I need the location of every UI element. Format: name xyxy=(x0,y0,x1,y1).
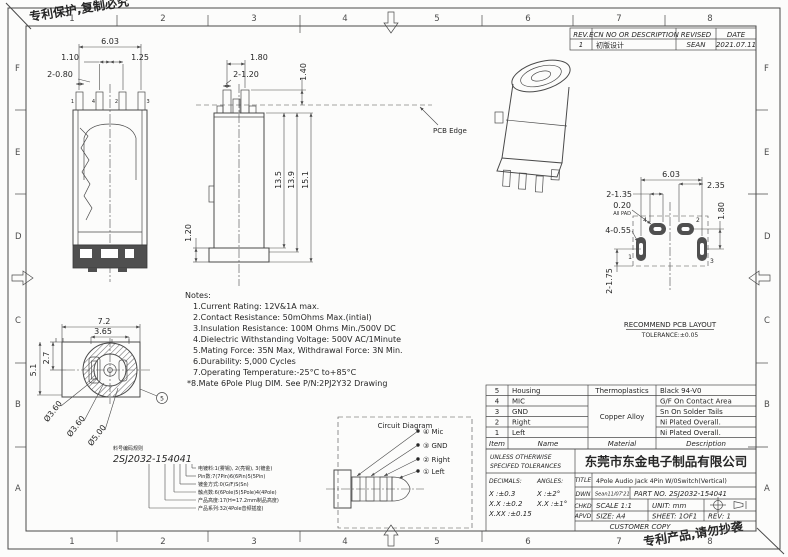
projection-symbol-icon xyxy=(710,497,746,513)
revised-header: REVISED xyxy=(681,31,712,39)
bom-item: 3 xyxy=(495,408,499,416)
zone-number: 2 xyxy=(160,537,165,547)
zone-letter: B xyxy=(764,400,770,410)
bom-header: Name xyxy=(538,440,559,448)
decimals-label: DECIMALS: xyxy=(489,478,522,485)
code-legend-line: 触点数:6(6Pole)5(5Pole)4(4Pole) xyxy=(198,489,277,496)
zone-letter: A xyxy=(15,484,21,494)
bom-header: Item xyxy=(489,440,505,448)
part-code-heading: 料号编码规则 xyxy=(113,445,143,452)
zone-number: 3 xyxy=(251,537,256,547)
tolerance-value: X.X :±1° xyxy=(536,500,567,508)
zone-letter: A xyxy=(764,484,770,494)
engineering-drawing-sheet: F E D C B A F E D C B A 1 2 3 4 5 6 7 8 … xyxy=(0,0,788,557)
bom-description: Sn On Solder Tails xyxy=(660,408,723,416)
bom-item: 2 xyxy=(495,419,499,427)
zone-number: 5 xyxy=(434,537,439,547)
dim-label: Ø3.60 xyxy=(41,399,64,424)
bom-name: GND xyxy=(512,408,528,416)
title-label: TITLE xyxy=(575,477,591,484)
zone-number: 6 xyxy=(525,14,530,24)
pcb-layout-view: 4 2 1 3 6.03 2.35 2-1.35 0.20 All PAD 4-… xyxy=(605,170,726,339)
pcb-tolerance-caption: TOLERANCE:±0.05 xyxy=(641,332,699,339)
zone-number: 4 xyxy=(342,537,347,547)
code-legend-line: 镀金方式:0(G/F)S(Sn) xyxy=(198,481,249,488)
pad-number: 2 xyxy=(696,217,700,224)
tolerance-note: SPECIFED TOLERANCES xyxy=(490,463,561,470)
bom-item: 5 xyxy=(495,387,499,395)
pin-number: 3 xyxy=(147,99,150,105)
part-number-legend: 料号编码规则 2SJ2032-154041 电镀料:1(雾锡), 2(亮锡), … xyxy=(113,445,279,512)
iso-socket-hole xyxy=(530,69,552,83)
pcb-edge-label: PCB Edge xyxy=(433,127,467,135)
part-code-tree xyxy=(149,464,196,508)
note-item: 3.Insulation Resistance: 100M Ohms Min./… xyxy=(193,324,396,333)
code-legend-line: 产品高度:17(H=17.2mm制品高度) xyxy=(198,497,279,504)
dim-label: Ø5.00 xyxy=(85,423,108,448)
spring-contact xyxy=(80,128,92,220)
part-number: 2SJ2032-154041 xyxy=(113,454,192,465)
chkd-label: CHKD xyxy=(574,503,592,510)
circuit-pin-label: ② Right xyxy=(423,456,450,464)
dwn-value: Sean11/07'21 xyxy=(595,492,630,498)
note-item: 1.Current Rating: 12V&1A max. xyxy=(193,302,319,311)
note-item: 4.Dielectric Withstanding Voltage: 500V … xyxy=(193,335,401,344)
zone-number: 8 xyxy=(707,14,712,24)
dim-label: 5.1 xyxy=(29,364,38,377)
code-legend-line: Pin数:7(7Pin)6(6Pin)5(5Pin) xyxy=(198,473,265,480)
dim-label: 1.40 xyxy=(299,63,308,81)
tolerance-note: UNLESS OTHERWISE xyxy=(490,454,552,461)
pin-number: 2 xyxy=(115,99,118,105)
pcb-layout-caption: RECOMMEND PCB LAYOUT xyxy=(624,321,717,329)
iso-flange-top xyxy=(508,54,573,97)
dwn-label: DWN xyxy=(575,491,591,498)
notes-title: Notes: xyxy=(185,291,211,300)
side-view: PCB Edge 1.80 2-1.20 1.40 13.5 13.9 xyxy=(184,53,467,286)
scale-value: SCALE 1:1 xyxy=(596,502,632,510)
code-legend-line: 产品系列:32(4Pole音频插座) xyxy=(198,505,264,512)
bom-description: Ni Plated Overall. xyxy=(660,429,721,437)
dim-label: All PAD xyxy=(613,211,631,217)
bom-material: Copper Alloy xyxy=(600,413,645,421)
dim-label: 2-1.35 xyxy=(606,190,632,199)
zone-number: 6 xyxy=(525,537,530,547)
centering-arrow-top xyxy=(384,12,398,33)
date-header: DATE xyxy=(727,31,746,39)
zone-letter: F xyxy=(764,64,769,74)
bom-table: 5 4 3 2 1 Housing MIC GND Right Left The… xyxy=(486,385,756,449)
part-no: PART NO. 2SJ2032-154041 xyxy=(634,490,727,498)
zone-letter: E xyxy=(15,148,20,158)
note-item: 7.Operating Temperature:-25°C to+85°C xyxy=(193,368,357,377)
rev-date: 2021.07.11 xyxy=(716,41,756,49)
dim-label: 2.7 xyxy=(42,352,51,365)
dim-label: 1.80 xyxy=(250,53,268,62)
zone-number: 5 xyxy=(434,14,439,24)
drawing-title: 4Pole Audio Jack 4Pin W/0Switch(Vertical… xyxy=(596,478,727,485)
zone-letter: D xyxy=(764,232,771,242)
tolerance-value: X.XX :±0.15 xyxy=(488,510,532,518)
bom-description: Ni Plated Overall. xyxy=(660,419,721,427)
circuit-pin-label: ③ GND xyxy=(423,442,448,450)
note-item: 5.Mating Force: 35N Max, Withdrawal Forc… xyxy=(193,346,403,355)
dim-label: 6.03 xyxy=(101,37,119,46)
note-item: 6.Durability: 5,000 Cycles xyxy=(193,357,296,366)
customer-copy-label: CUSTOMER COPY xyxy=(610,523,671,531)
dim-label: 2.35 xyxy=(707,181,725,190)
bom-name: Left xyxy=(512,429,525,437)
pin-number: 1 xyxy=(71,99,74,105)
zone-letter: C xyxy=(764,316,770,326)
notes: Notes: 1.Current Rating: 12V&1A max. 2.C… xyxy=(185,291,403,388)
zone-letter: D xyxy=(15,232,22,242)
iso-base xyxy=(497,158,562,177)
revision-table: REV. ECN NO OR DESCRIPTION REVISED DATE … xyxy=(570,28,756,50)
solder-pin xyxy=(223,90,231,113)
bom-name: Housing xyxy=(512,387,540,395)
centering-arrow-left xyxy=(12,271,33,285)
company-name: 东莞市东金电子制品有限公司 xyxy=(585,454,748,469)
dim-label: 6.03 xyxy=(662,170,680,179)
bom-material: Thermoplastics xyxy=(594,387,649,395)
ecn-header: ECN NO OR DESCRIPTION xyxy=(589,31,679,39)
dim-label: 1.20 xyxy=(184,224,193,242)
tolerance-value: X :±2° xyxy=(536,490,560,498)
dim-label: 7.2 xyxy=(98,317,111,326)
iso-pins xyxy=(502,167,559,193)
dim-label: 1.25 xyxy=(131,53,149,62)
zone-letter: B xyxy=(15,400,21,410)
tolerance-value: X :±0.3 xyxy=(488,490,515,498)
rev-description: 初版设计 xyxy=(596,41,624,50)
bom-description: G/F On Contact Area xyxy=(660,398,732,406)
dim-label: 0.20 xyxy=(613,201,631,210)
zone-number: 4 xyxy=(342,14,347,24)
rev-number: 1 xyxy=(579,41,583,49)
sheet-value: SHEET: 1OF1 xyxy=(652,513,697,521)
circuit-pin-label: ④ Mic xyxy=(423,428,443,436)
dim-label: 13.5 xyxy=(274,171,283,189)
solder-pin xyxy=(241,90,249,113)
dim-label: 2-0.80 xyxy=(47,70,73,79)
dim-label: 1.10 xyxy=(61,53,79,62)
dim-label: 3.65 xyxy=(94,327,112,336)
bom-description: Black 94-V0 xyxy=(660,387,701,395)
zone-letter: E xyxy=(764,148,769,158)
apvd-label: APVD xyxy=(574,513,592,520)
zone-letter: F xyxy=(15,64,20,74)
rev-header: REV. xyxy=(573,31,589,39)
patent-watermark-top-left: 专利保护,复制必究 xyxy=(28,0,130,24)
zone-letter: C xyxy=(15,316,21,326)
zone-number: 7 xyxy=(616,14,621,24)
code-legend-line: 电镀料:1(雾锡), 2(亮锡), 3(镀金) xyxy=(198,465,272,472)
solder-pins xyxy=(76,92,145,110)
circuit-pin-label: ① Left xyxy=(423,468,445,476)
zone-number: 3 xyxy=(251,14,256,24)
angles-label: ANGLES: xyxy=(536,478,563,485)
pin-number: 4 xyxy=(92,99,95,105)
bom-item: 4 xyxy=(495,398,500,406)
title-block: UNLESS OTHERWISE SPECIFED TOLERANCES 东莞市… xyxy=(486,449,756,531)
tolerance-value: X.X :±0.2 xyxy=(488,500,523,508)
dim-label: 2-1.75 xyxy=(605,268,614,294)
zone-number: 2 xyxy=(160,14,165,24)
bom-header: Description xyxy=(686,440,726,448)
rev-value: REV: 1 xyxy=(708,513,731,521)
section-view: 6.03 1.10 1.25 2-0.80 1 4 2 3 xyxy=(47,37,150,282)
item-balloon-number: 5 xyxy=(160,396,164,403)
rev-author: SEAN xyxy=(687,41,707,49)
iso-view xyxy=(495,54,574,193)
bom-header: Material xyxy=(608,440,636,448)
unit-value: UNIT: mm xyxy=(652,502,686,510)
pad-number: 1 xyxy=(628,254,632,261)
zone-number: 1 xyxy=(69,537,74,547)
centering-arrow-right xyxy=(749,271,770,285)
dim-label: Ø3.60 xyxy=(64,414,87,439)
dim-label: 2-1.20 xyxy=(233,70,259,79)
side-nub xyxy=(209,186,214,202)
bom-item: 1 xyxy=(495,429,499,437)
bom-name: Right xyxy=(512,419,531,427)
pad-number: 3 xyxy=(710,258,714,265)
note-item: 2.Contact Resistance: 50mOhms Max.(intia… xyxy=(193,313,372,322)
zone-number: 7 xyxy=(616,537,621,547)
dim-label: 1.80 xyxy=(717,202,726,220)
size-value: SIZE: A4 xyxy=(596,513,626,521)
circuit-diagram: Circuit Diagram ④ Mic ③ GND ② Right ① Le… xyxy=(326,417,472,528)
dim-label: 15.1 xyxy=(301,171,310,189)
bom-name: MIC xyxy=(512,398,525,406)
note-item: *8.Mate 6Pole Plug DIM. See P/N:2PJ2Y32 … xyxy=(187,379,387,388)
front-view: 7.2 3.65 2.7 5.1 Ø3.60 Ø3.60 Ø5.00 5 xyxy=(29,317,168,448)
dim-label: 13.9 xyxy=(287,171,296,189)
dim-label: 4-0.55 xyxy=(605,226,631,235)
